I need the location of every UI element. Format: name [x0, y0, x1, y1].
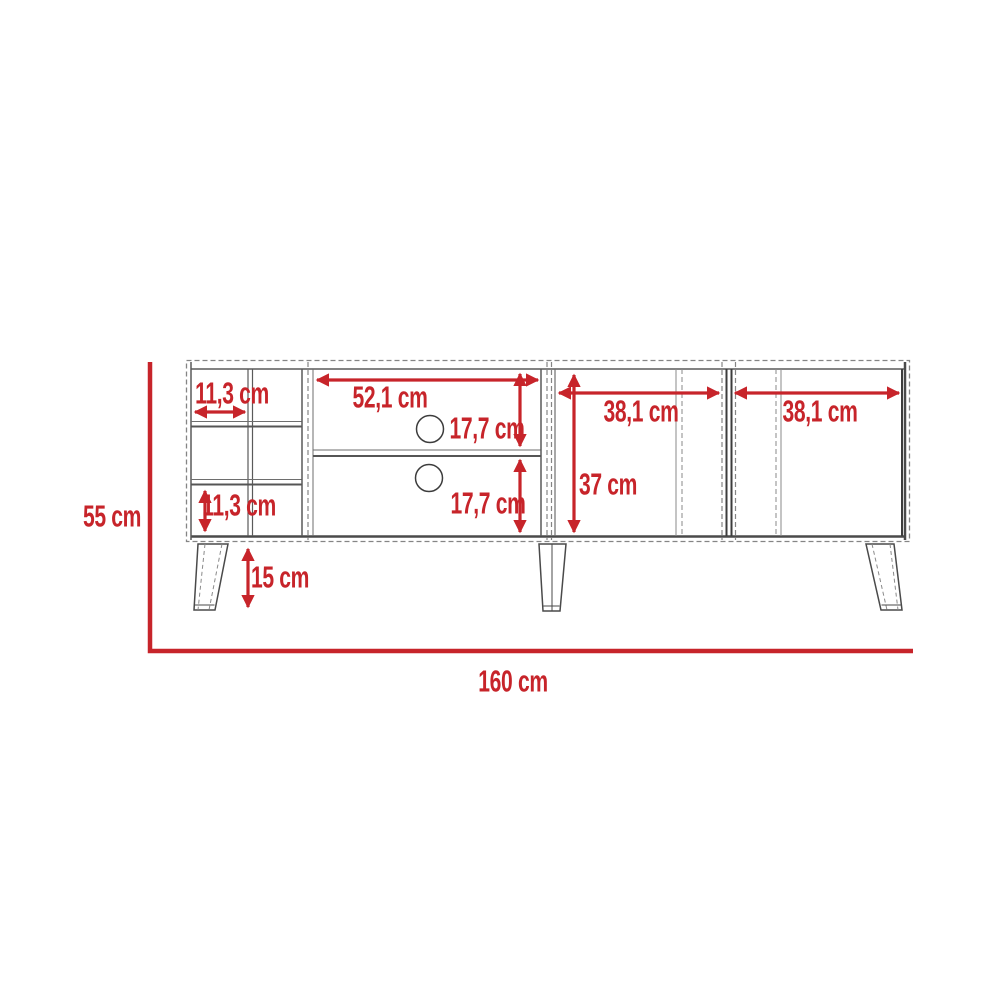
cable-hole-bottom — [416, 465, 443, 492]
carcass-dashed-outline — [187, 361, 910, 542]
dim-label-right-door-width: 38,1 cm — [783, 396, 858, 427]
dim-label-left-door-width: 38,1 cm — [604, 396, 679, 427]
left-leg — [194, 544, 228, 610]
dim-label-center-lower-height: 17,7 cm — [451, 488, 526, 519]
door-section — [676, 362, 902, 540]
dim-label-door-height: 37 cm — [579, 469, 637, 500]
dim-label-center-width: 52,1 cm — [353, 382, 428, 413]
dim-label-center-upper-height: 17,7 cm — [450, 413, 525, 444]
dim-label-total-width: 160 cm — [478, 666, 547, 697]
right-leg — [866, 544, 902, 610]
middle-leg — [539, 544, 566, 611]
dimension-diagram-page: 11,3 cm 11,3 cm 52,1 cm 17,7 cm 17,7 cm … — [0, 0, 1000, 1000]
cabinet-carcass — [187, 361, 910, 542]
dim-label-total-height: 55 cm — [83, 501, 141, 532]
dim-label-cubby-height: 11,3 cm — [202, 490, 276, 521]
dim-label-leg-height: 15 cm — [251, 562, 309, 593]
cable-hole-top — [417, 416, 444, 443]
dim-label-cubby-width: 11,3 cm — [195, 378, 269, 409]
